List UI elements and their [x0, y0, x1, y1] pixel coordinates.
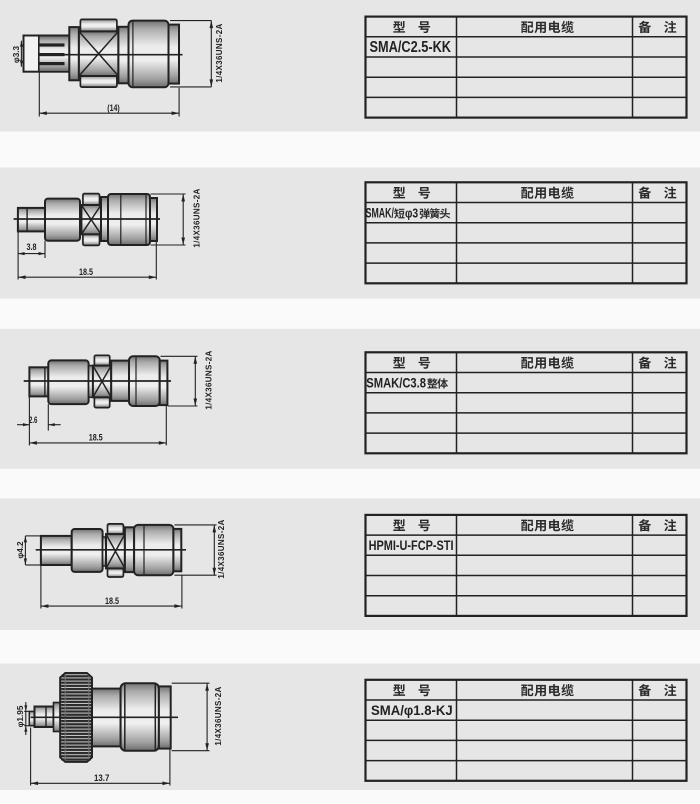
svg-text:SMA/C2.5-KK: SMA/C2.5-KK: [370, 39, 452, 56]
svg-text:φ3.3: φ3.3: [12, 45, 21, 63]
svg-text:18.5: 18.5: [79, 267, 93, 277]
svg-text:SMA/φ1.8-KJ: SMA/φ1.8-KJ: [371, 702, 453, 718]
svg-text:1/4X36UNS-2A: 1/4X36UNS-2A: [214, 686, 223, 745]
svg-text:HPMI-U-FCP-STI: HPMI-U-FCP-STI: [369, 537, 454, 553]
svg-text:φ4.2: φ4.2: [16, 541, 25, 559]
svg-text:φ3: φ3: [405, 206, 418, 221]
svg-text:1/4X36UNS-2A: 1/4X36UNS-2A: [217, 519, 226, 578]
svg-text:2.6: 2.6: [29, 415, 38, 425]
svg-text:1/4X36UNS-2A: 1/4X36UNS-2A: [192, 188, 201, 247]
svg-text:1/4X36UNS-2A: 1/4X36UNS-2A: [204, 350, 213, 409]
svg-text:SMAK/C3.8: SMAK/C3.8: [366, 375, 426, 391]
svg-text:φ1.95: φ1.95: [16, 705, 25, 727]
svg-text:18.5: 18.5: [105, 596, 119, 606]
svg-text:18.5: 18.5: [89, 433, 103, 443]
svg-text:SMAK/: SMAK/: [366, 205, 394, 221]
svg-text:1/4X36UNS-2A: 1/4X36UNS-2A: [215, 23, 224, 82]
svg-text:(14): (14): [107, 103, 120, 113]
svg-text:3.8: 3.8: [27, 242, 37, 252]
svg-text:13.7: 13.7: [94, 773, 109, 783]
